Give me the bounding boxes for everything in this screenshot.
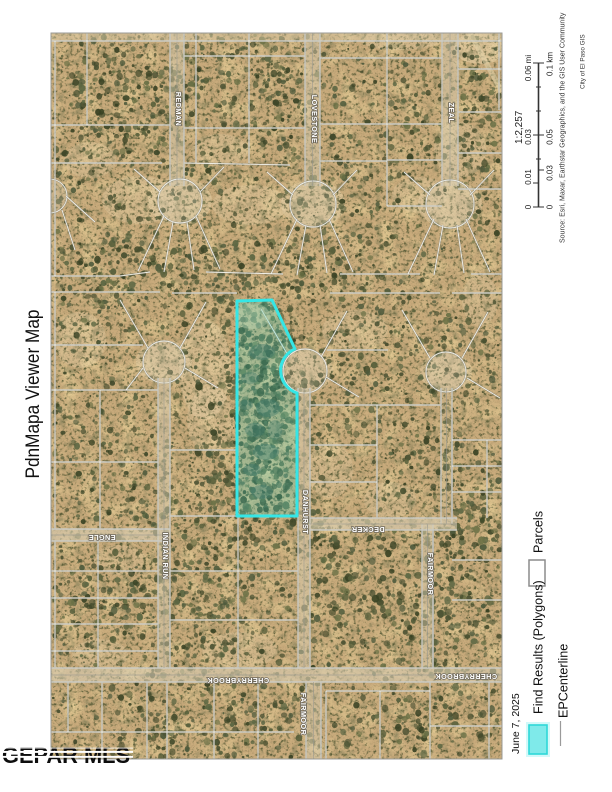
- svg-text:REDMAN: REDMAN: [174, 92, 183, 126]
- svg-text:CHERRYBROOK: CHERRYBROOK: [207, 676, 269, 685]
- svg-text:0: 0: [546, 204, 555, 209]
- svg-text:0: 0: [524, 204, 533, 209]
- svg-text:INDIAN RUN: INDIAN RUN: [161, 533, 170, 580]
- svg-text:0.06 mi: 0.06 mi: [524, 55, 533, 81]
- svg-text:Find Results (Polygons): Find Results (Polygons): [532, 580, 546, 714]
- svg-text:CHERRYBROOK: CHERRYBROOK: [435, 672, 497, 681]
- svg-text:DECKER: DECKER: [351, 525, 385, 534]
- svg-text:Source: Esri, Maxar, Earthstar: Source: Esri, Maxar, Earthstar Geographi…: [560, 12, 567, 243]
- svg-text:Parcels: Parcels: [532, 511, 546, 553]
- svg-text:EPCenterline: EPCenterline: [557, 644, 571, 718]
- svg-text:June 7, 2025: June 7, 2025: [510, 693, 522, 754]
- svg-text:GEPAR MLS: GEPAR MLS: [2, 743, 130, 768]
- svg-text:0.03: 0.03: [546, 165, 555, 181]
- svg-text:ENGLE: ENGLE: [88, 533, 115, 542]
- svg-text:DANHURST: DANHURST: [301, 490, 310, 534]
- svg-text:0.01: 0.01: [524, 169, 533, 185]
- svg-text:0.05: 0.05: [546, 129, 555, 145]
- svg-text:0.03: 0.03: [524, 129, 533, 145]
- svg-text:FAIRMOOR: FAIRMOOR: [299, 693, 308, 736]
- svg-text:PdnMapa Viewer Map: PdnMapa Viewer Map: [22, 309, 44, 478]
- svg-text:0.1 km: 0.1 km: [546, 52, 555, 76]
- svg-text:FAIRMOOR: FAIRMOOR: [426, 553, 435, 596]
- svg-text:LOVESTONE: LOVESTONE: [310, 95, 319, 143]
- svg-text:City of El Paso GIS: City of El Paso GIS: [580, 34, 587, 89]
- svg-text:ZEAL: ZEAL: [447, 103, 456, 124]
